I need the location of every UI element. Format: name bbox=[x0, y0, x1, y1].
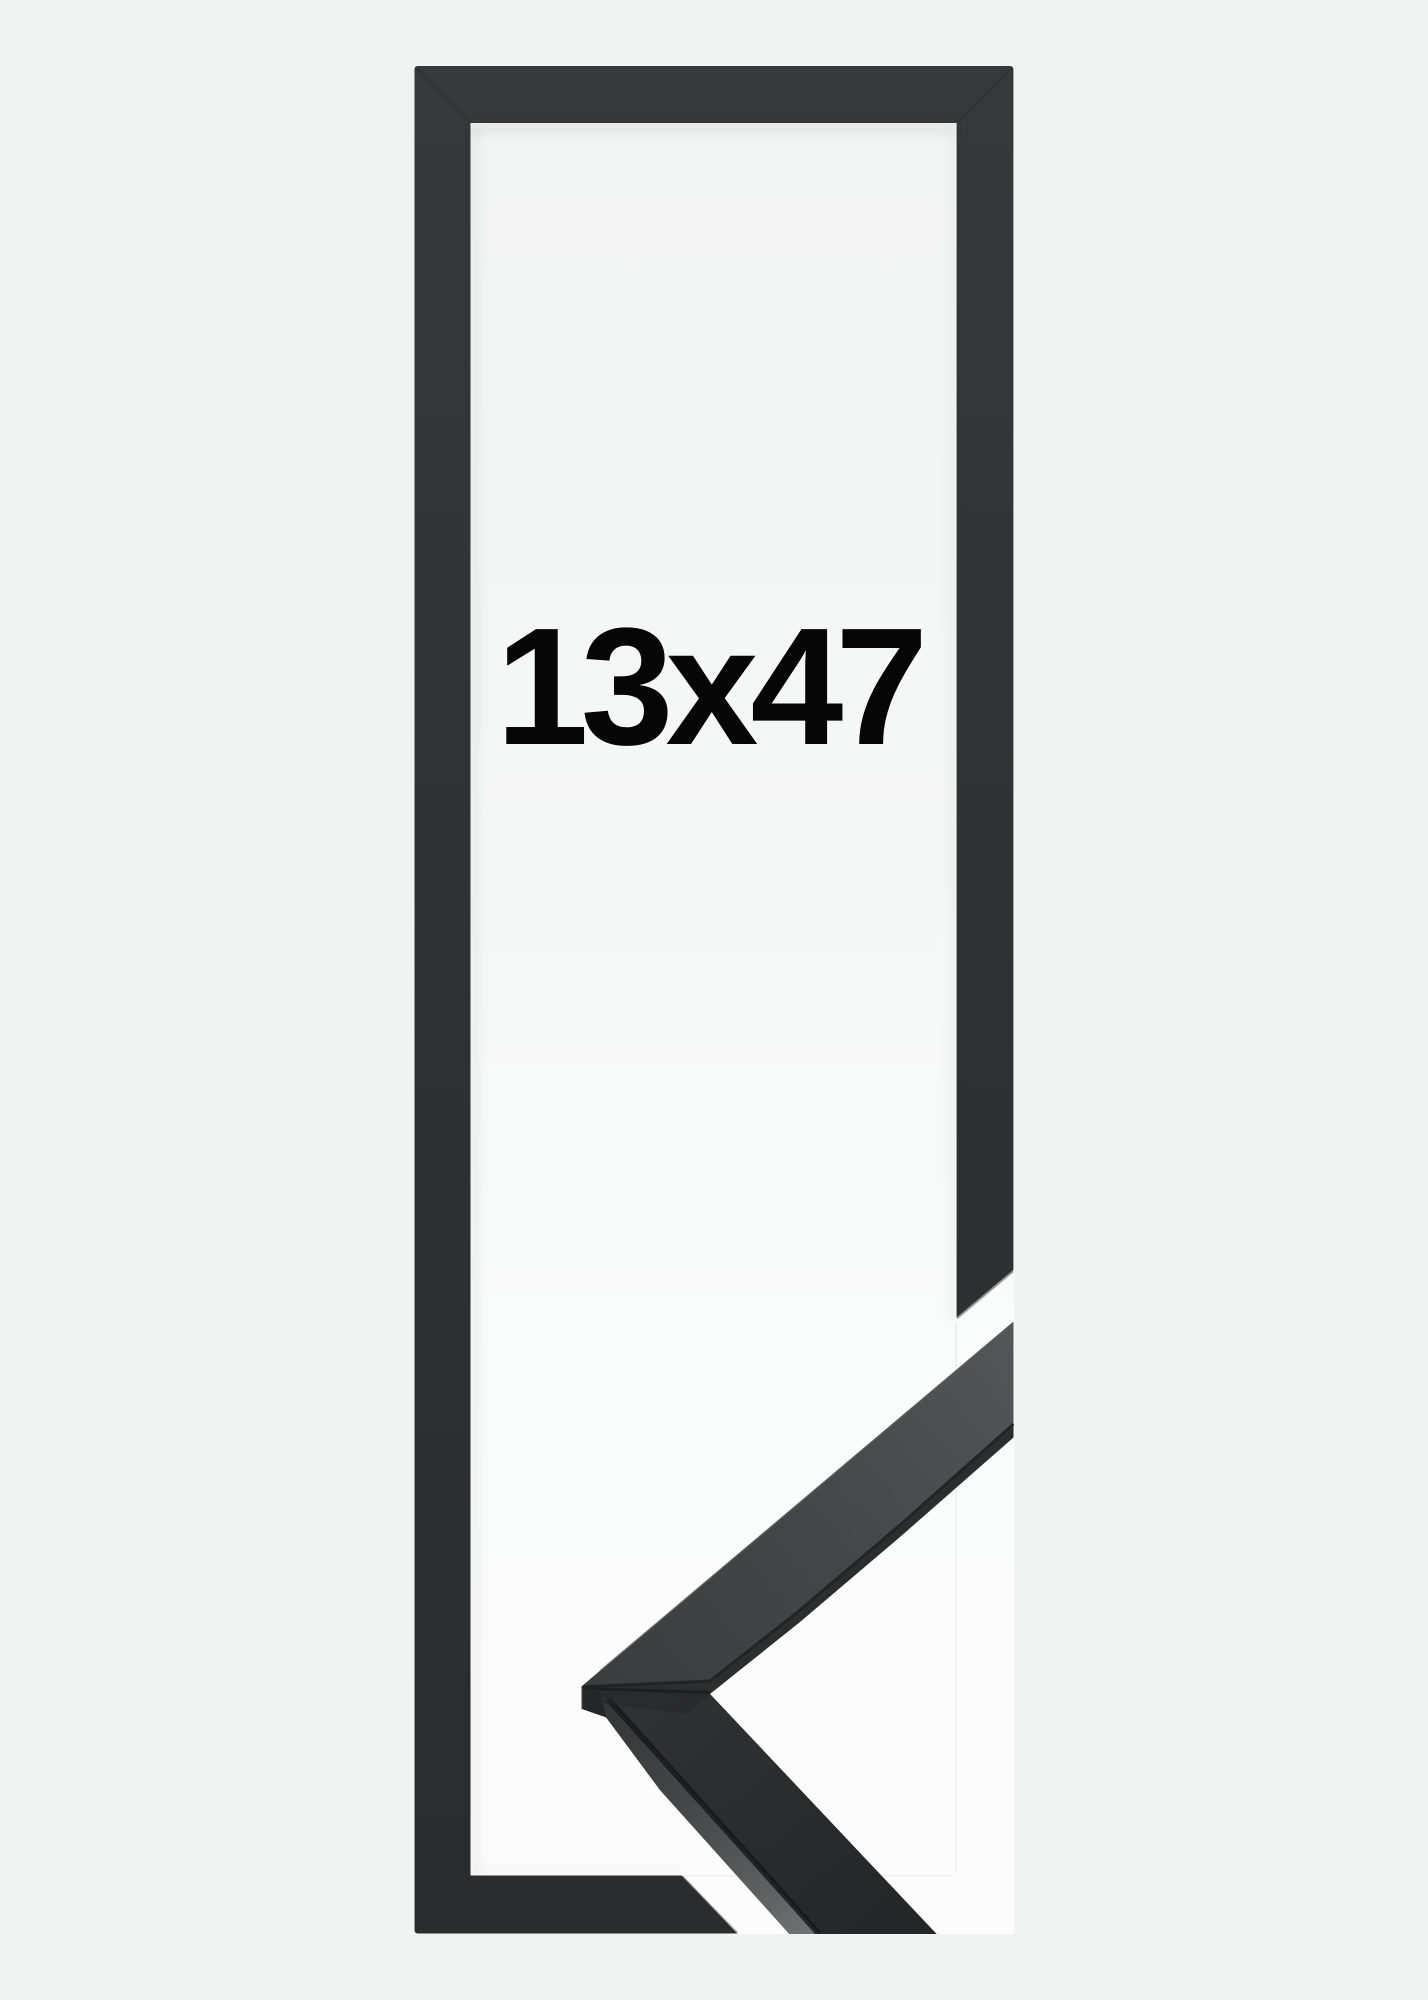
svg-text:13x47: 13x47 bbox=[496, 594, 922, 780]
